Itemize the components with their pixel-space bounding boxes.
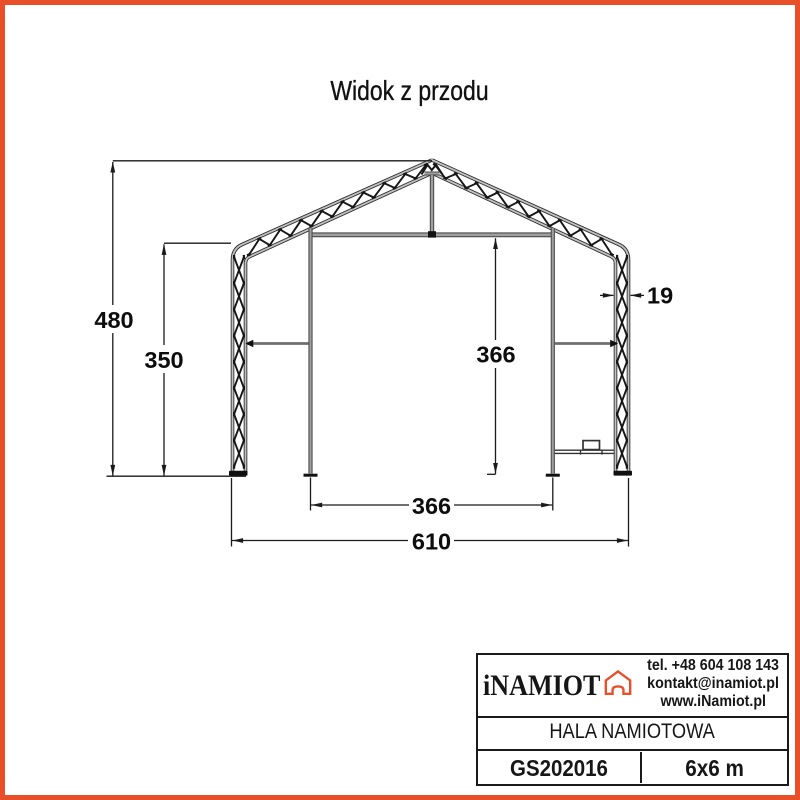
svg-text:19: 19 <box>647 283 673 309</box>
svg-text:610: 610 <box>412 529 451 555</box>
svg-text:480: 480 <box>94 307 133 333</box>
svg-text:366: 366 <box>412 493 451 519</box>
svg-text:350: 350 <box>144 347 183 373</box>
svg-text:366: 366 <box>476 342 515 368</box>
